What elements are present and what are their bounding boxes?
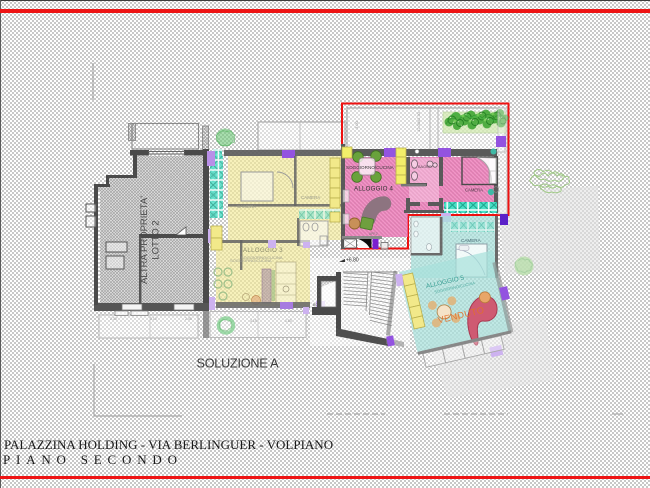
- svg-text:BC: BC: [313, 303, 318, 307]
- svg-text:SOGGIORNO/CUCINA: SOGGIORNO/CUCINA: [241, 255, 283, 260]
- svg-text:SOLUZIONE A: SOLUZIONE A: [197, 357, 280, 371]
- svg-text:2.30: 2.30: [110, 317, 117, 321]
- svg-text:2.45: 2.45: [185, 317, 192, 321]
- svg-text:ALLOGGIO 3: ALLOGGIO 3: [243, 248, 283, 254]
- svg-text:CAMERA: CAMERA: [461, 238, 482, 243]
- svg-text:ALLOGGIO 4: ALLOGGIO 4: [354, 186, 393, 193]
- svg-text:LOTTO 2: LOTTO 2: [151, 220, 162, 259]
- svg-text:4.15: 4.15: [250, 319, 257, 323]
- svg-text:3.10: 3.10: [150, 317, 157, 321]
- svg-text:3.00: 3.00: [354, 120, 359, 129]
- svg-text:CAMERA: CAMERA: [301, 195, 320, 200]
- svg-text:ALTRA PROPRIETA': ALTRA PROPRIETA': [139, 196, 150, 284]
- svg-text:SOGGIORNO/CUCINA: SOGGIORNO/CUCINA: [346, 165, 395, 170]
- svg-text:1.80: 1.80: [285, 319, 292, 323]
- svg-text:APP.2: APP.2: [369, 232, 378, 236]
- svg-text:BAGNO: BAGNO: [418, 165, 432, 169]
- svg-text:+6.80: +6.80: [346, 258, 359, 264]
- svg-text:CAMERA: CAMERA: [237, 204, 256, 209]
- svg-text:12.00x2.30: 12.00x2.30: [416, 111, 421, 132]
- svg-text:CAMERA: CAMERA: [465, 188, 483, 193]
